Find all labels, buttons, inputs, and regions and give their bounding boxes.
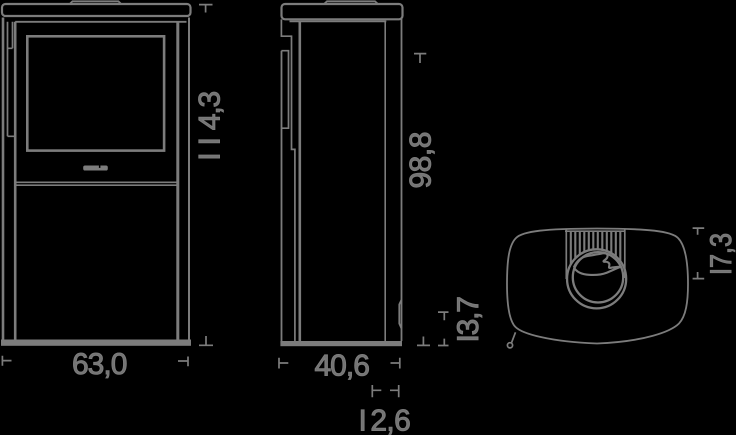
svg-text:98,8: 98,8 xyxy=(405,132,438,188)
svg-text:I3,7: I3,7 xyxy=(452,297,485,343)
svg-text:I7,3: I7,3 xyxy=(705,233,736,275)
svg-text:II4,3: II4,3 xyxy=(194,92,227,161)
svg-text:63,0: 63,0 xyxy=(72,348,127,381)
svg-text:I2,6: I2,6 xyxy=(359,405,411,435)
svg-text:40,6: 40,6 xyxy=(315,350,370,383)
